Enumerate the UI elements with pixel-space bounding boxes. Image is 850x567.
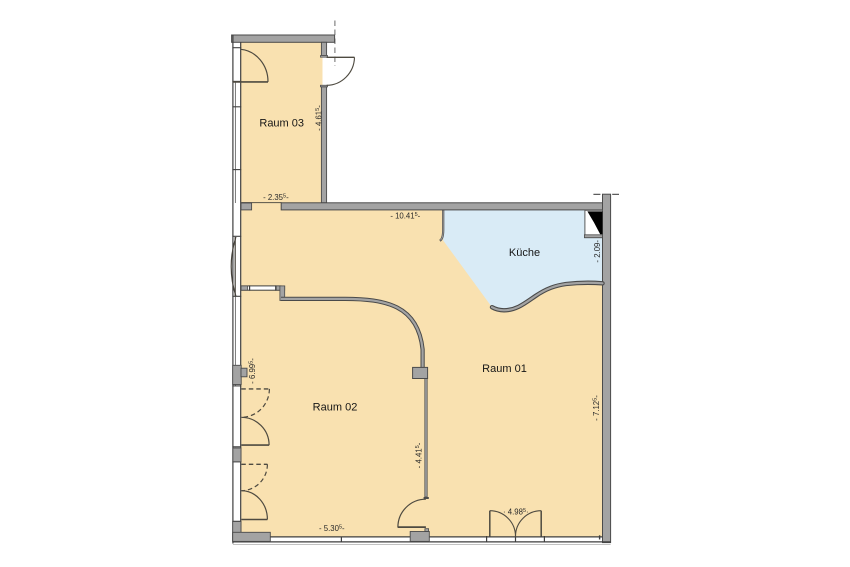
svg-text:- 7.125-: - 7.125-	[592, 395, 601, 421]
svg-text:- 6.995-: - 6.995-	[248, 358, 257, 384]
svg-text:Raum 02: Raum 02	[313, 401, 358, 413]
svg-text:- 4.615-: - 4.615-	[314, 105, 323, 131]
svg-text:- 2.355-: - 2.355-	[263, 193, 289, 202]
svg-text:Küche: Küche	[509, 247, 540, 259]
svg-text:Raum 01: Raum 01	[482, 363, 527, 375]
svg-text:- 4.415-: - 4.415-	[415, 442, 424, 468]
svg-text:Raum 03: Raum 03	[259, 118, 304, 130]
svg-text:- 2.09-: - 2.09-	[593, 240, 602, 263]
svg-text:- 5.305-: - 5.305-	[319, 524, 345, 533]
